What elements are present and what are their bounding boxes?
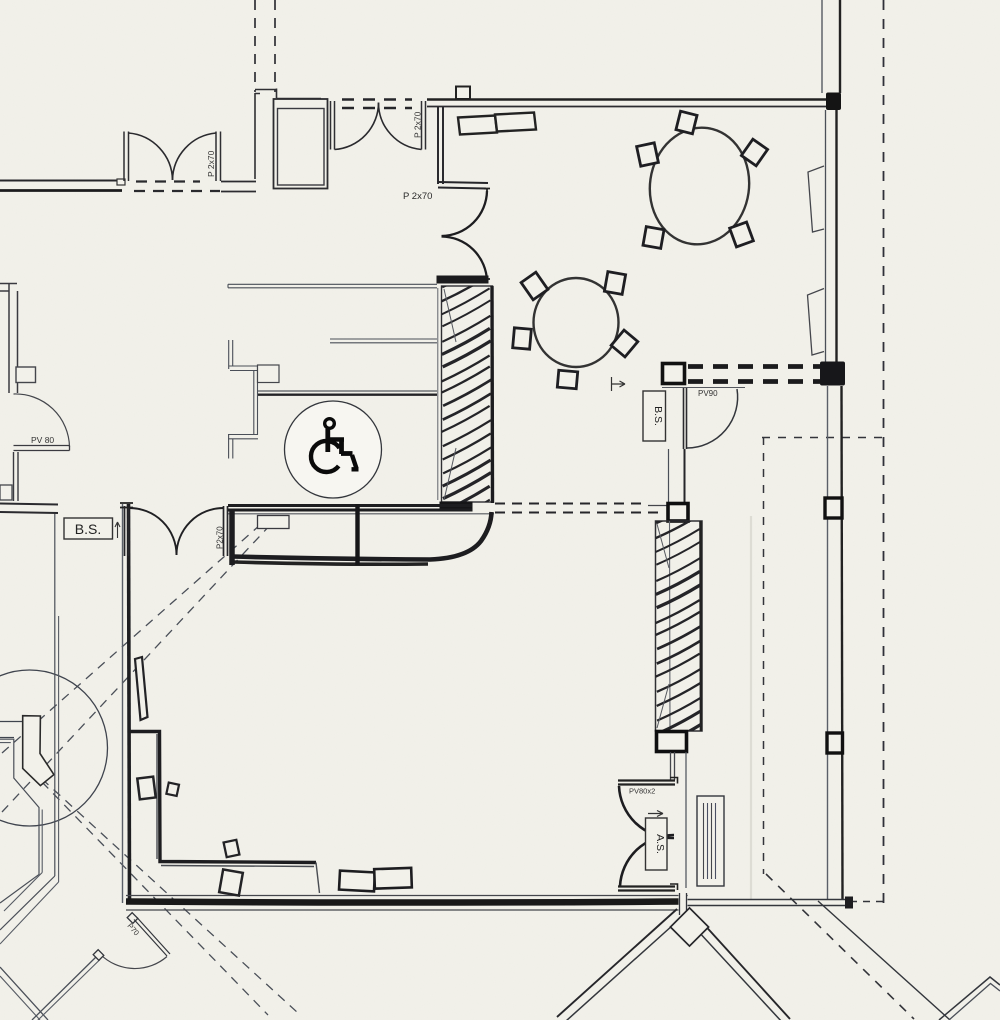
svg-text:PV 80: PV 80 bbox=[31, 435, 54, 445]
svg-text:P 2x70: P 2x70 bbox=[403, 191, 432, 202]
svg-text:PV80x2: PV80x2 bbox=[629, 787, 655, 796]
svg-text:A.S.: A.S. bbox=[654, 834, 666, 854]
svg-text:B.S.: B.S. bbox=[652, 406, 664, 426]
svg-text:B.S.: B.S. bbox=[75, 521, 101, 537]
svg-text:P2x70: P2x70 bbox=[216, 526, 225, 549]
svg-text:P 2x70: P 2x70 bbox=[206, 150, 216, 177]
svg-text:PV90: PV90 bbox=[698, 389, 718, 398]
svg-text:P 2x70: P 2x70 bbox=[413, 111, 423, 138]
